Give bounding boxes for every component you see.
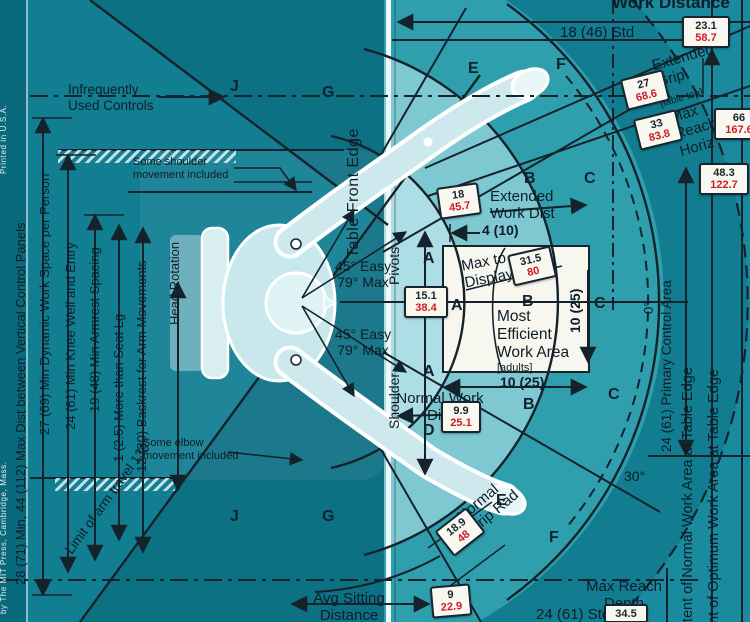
ten-25-horizontal-dim: 10 (25) <box>500 374 544 390</box>
dim-label-armrest-spacing: 19 (48) Min Armrest Spacing <box>87 247 102 412</box>
head-rotation-label: Head Rotation <box>167 242 182 325</box>
value-inches: 66 <box>716 112 750 124</box>
zone-F-top: F <box>556 56 566 74</box>
zone-G-bottom: G <box>322 508 334 526</box>
callout-optimum-extent: 48.3 122.7 <box>699 163 749 195</box>
value-cm: 22.9 <box>433 600 470 615</box>
dim-label-dynamic-work-space: 27 (69) Min Dynamic Work Space per Perso… <box>37 174 52 435</box>
value-cm: 167.6 <box>716 124 750 136</box>
value-inches: 9.9 <box>443 405 479 417</box>
work-distance-label: Work Distance <box>612 0 730 13</box>
callout-extended-work-dist: 18 45.7 <box>436 182 482 219</box>
extent-normal-work-label: Extent of Normal Work Area at Table Edge <box>680 367 696 622</box>
std-24-label: 24 (61) Std <box>536 606 610 622</box>
value-inches: 23.1 <box>684 20 728 32</box>
fine-print-printed: Printed in U.S.A. <box>0 105 8 174</box>
zone-E-top: E <box>468 60 479 78</box>
extended-work-dist-label: Extended Work Dist <box>490 188 555 223</box>
value-cm: 25.1 <box>443 417 479 429</box>
head <box>266 273 326 333</box>
std-18-label: 18 (46) Std <box>560 24 634 41</box>
zone-B-2: B <box>522 293 534 311</box>
callout-max-reach: 66 167.6 <box>714 108 750 140</box>
extent-optimum-work-label: Extent of Optimum Work Area at Table Edg… <box>706 369 722 622</box>
callout-work-distance-std: 23.1 58.7 <box>682 16 730 48</box>
callout-normal-work-dist: 9.9 25.1 <box>441 401 481 433</box>
value-inches: 48.3 <box>701 167 747 179</box>
primary-control-area-label: 24 (61) Primary Control Area <box>659 280 674 452</box>
zone-G-top: G <box>322 84 334 102</box>
fine-print-publisher: by The MIT Press, Cambridge, Mass. <box>0 461 8 614</box>
value-cm: 38.4 <box>406 302 446 314</box>
dim-label-knee-well: 24 (61) Min Knee Well and Entry <box>63 242 78 430</box>
value-inches: 34.5 <box>606 608 646 620</box>
zone-E-bottom: E <box>496 492 507 510</box>
callout-max-reach-depth: 34.5 <box>604 604 648 622</box>
pivots-label: Pivots <box>386 247 402 285</box>
table-front-edge-line <box>386 0 391 622</box>
ten-25-vertical-dim: 10 (25) <box>567 289 583 333</box>
angle-thirty-label: 30° <box>624 468 645 484</box>
elbow-movement-note: Some elbow movement included <box>143 437 238 463</box>
zone-B-1: B <box>524 170 536 188</box>
zone-A-1: A <box>423 250 435 268</box>
value-cm: 122.7 <box>701 179 747 191</box>
shoulder-movement-note: Some shoulder movement included <box>133 156 228 182</box>
zone-A-3: A <box>423 363 435 381</box>
value-cm: 58.7 <box>684 32 728 44</box>
zone-B-3: B <box>523 396 535 414</box>
zone-F-bottom: F <box>549 529 559 547</box>
dim-label-control-panels: 28 (71) Min, 44 (112) Max Dist between V… <box>13 223 28 585</box>
table-front-edge-label: Table Front Edge <box>345 128 363 258</box>
zone-A-2: A <box>451 297 463 315</box>
zone-D: D <box>423 422 435 440</box>
most-efficient-label: Most Efficient Work Area <box>497 308 569 362</box>
infrequently-used-controls-label: Infrequently Used Controls <box>68 82 154 113</box>
adults-sublabel: [adults] <box>497 362 532 375</box>
value-inches: 15.1 <box>406 290 446 302</box>
dim-label-seat-length: 1 (2.5) More than Seat Lg <box>111 314 126 462</box>
zone-J-bottom: J <box>230 508 239 526</box>
zone-C-2: C <box>594 295 606 313</box>
callout-avg-sitting: 9 22.9 <box>430 583 473 618</box>
callout-shoulder-pivot: 15.1 38.4 <box>404 286 448 318</box>
zone-J-top: J <box>230 78 239 96</box>
angle-note-lower: 45° Easy 79° Max <box>330 326 396 358</box>
four-ten-dim-label: 4 (10) <box>482 222 519 238</box>
zone-C-1: C <box>584 170 596 188</box>
avg-sitting-distance-label: Avg Sitting Distance <box>303 590 395 622</box>
angle-zero-label: 0° <box>641 302 656 314</box>
zone-C-3: C <box>608 386 620 404</box>
ergonomics-workspace-diagram: Work Distance 18 (46) Std Table Front Ed… <box>0 0 750 622</box>
